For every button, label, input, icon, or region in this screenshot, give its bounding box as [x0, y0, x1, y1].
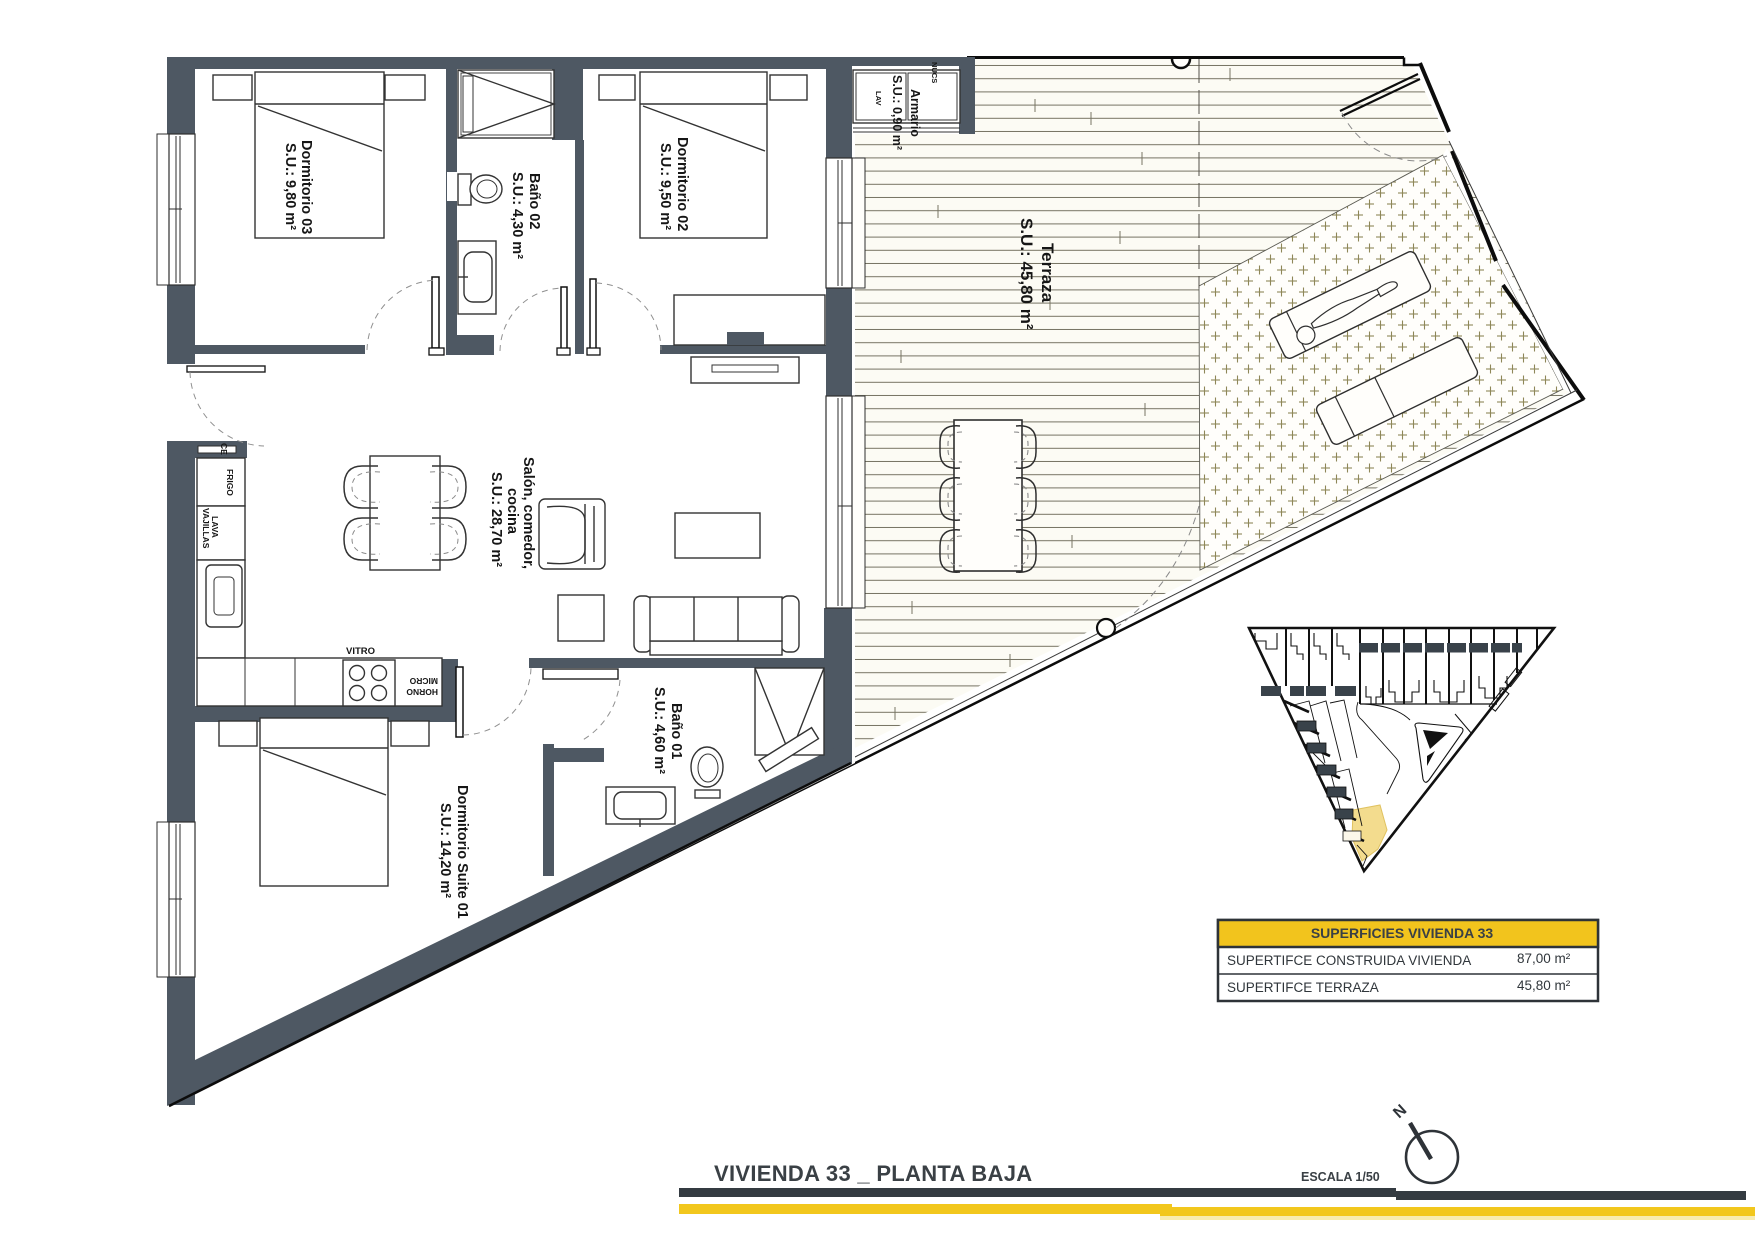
svg-text:45,80 m²: 45,80 m² [1517, 978, 1571, 993]
svg-text:CE: CE [219, 443, 229, 455]
svg-text:HORNOMICRO: HORNOMICRO [406, 676, 438, 697]
svg-text:SUPERTIFCE TERRAZA: SUPERTIFCE TERRAZA [1227, 980, 1379, 995]
svg-text:FRIGO: FRIGO [225, 469, 235, 496]
svg-text:ESCALA 1/50: ESCALA 1/50 [1301, 1170, 1380, 1184]
svg-text:LAV: LAV [874, 91, 883, 105]
svg-text:VITRO: VITRO [346, 646, 375, 657]
svg-text:N: N [1390, 1102, 1410, 1122]
svg-text:87,00 m²: 87,00 m² [1517, 951, 1571, 966]
svg-text:SUPERTIFCE CONSTRUIDA VIVIENDA: SUPERTIFCE CONSTRUIDA VIVIENDA [1227, 953, 1471, 968]
svg-text:SUPERFICIES VIVIENDA 33: SUPERFICIES VIVIENDA 33 [1311, 925, 1494, 941]
svg-text:NUCS: NUCS [930, 62, 939, 83]
svg-text:Dormitorio 03S.U.: 9,80 m²: Dormitorio 03S.U.: 9,80 m² [282, 140, 314, 234]
svg-text:VIVIENDA 33 _ PLANTA BAJA: VIVIENDA 33 _ PLANTA BAJA [714, 1161, 1032, 1186]
svg-text:Dormitorio 02S.U.: 9,50 m²: Dormitorio 02S.U.: 9,50 m² [657, 137, 690, 231]
